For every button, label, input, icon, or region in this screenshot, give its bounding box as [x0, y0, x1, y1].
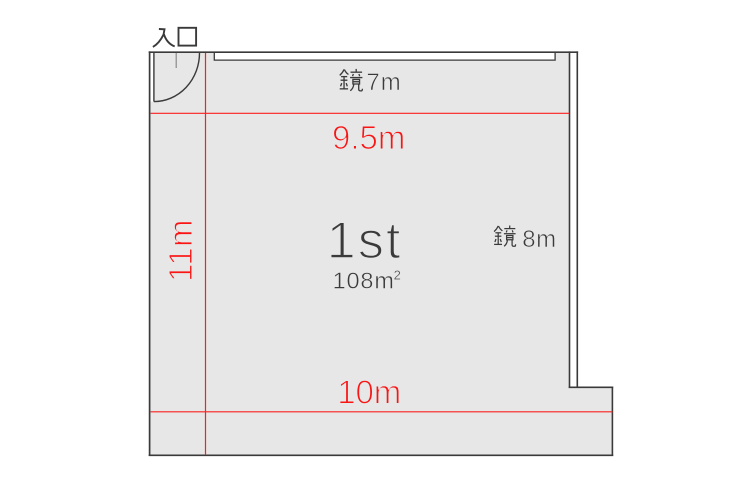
svg-text:2: 2 — [394, 267, 401, 282]
svg-text:1st: 1st — [327, 212, 401, 270]
svg-text:9.5m: 9.5m — [332, 119, 405, 156]
svg-text:7m: 7m — [366, 69, 400, 96]
svg-text:10m: 10m — [337, 374, 401, 411]
svg-text:8m: 8m — [522, 226, 556, 253]
svg-text:108m: 108m — [333, 268, 394, 294]
svg-text:11m: 11m — [162, 220, 199, 283]
